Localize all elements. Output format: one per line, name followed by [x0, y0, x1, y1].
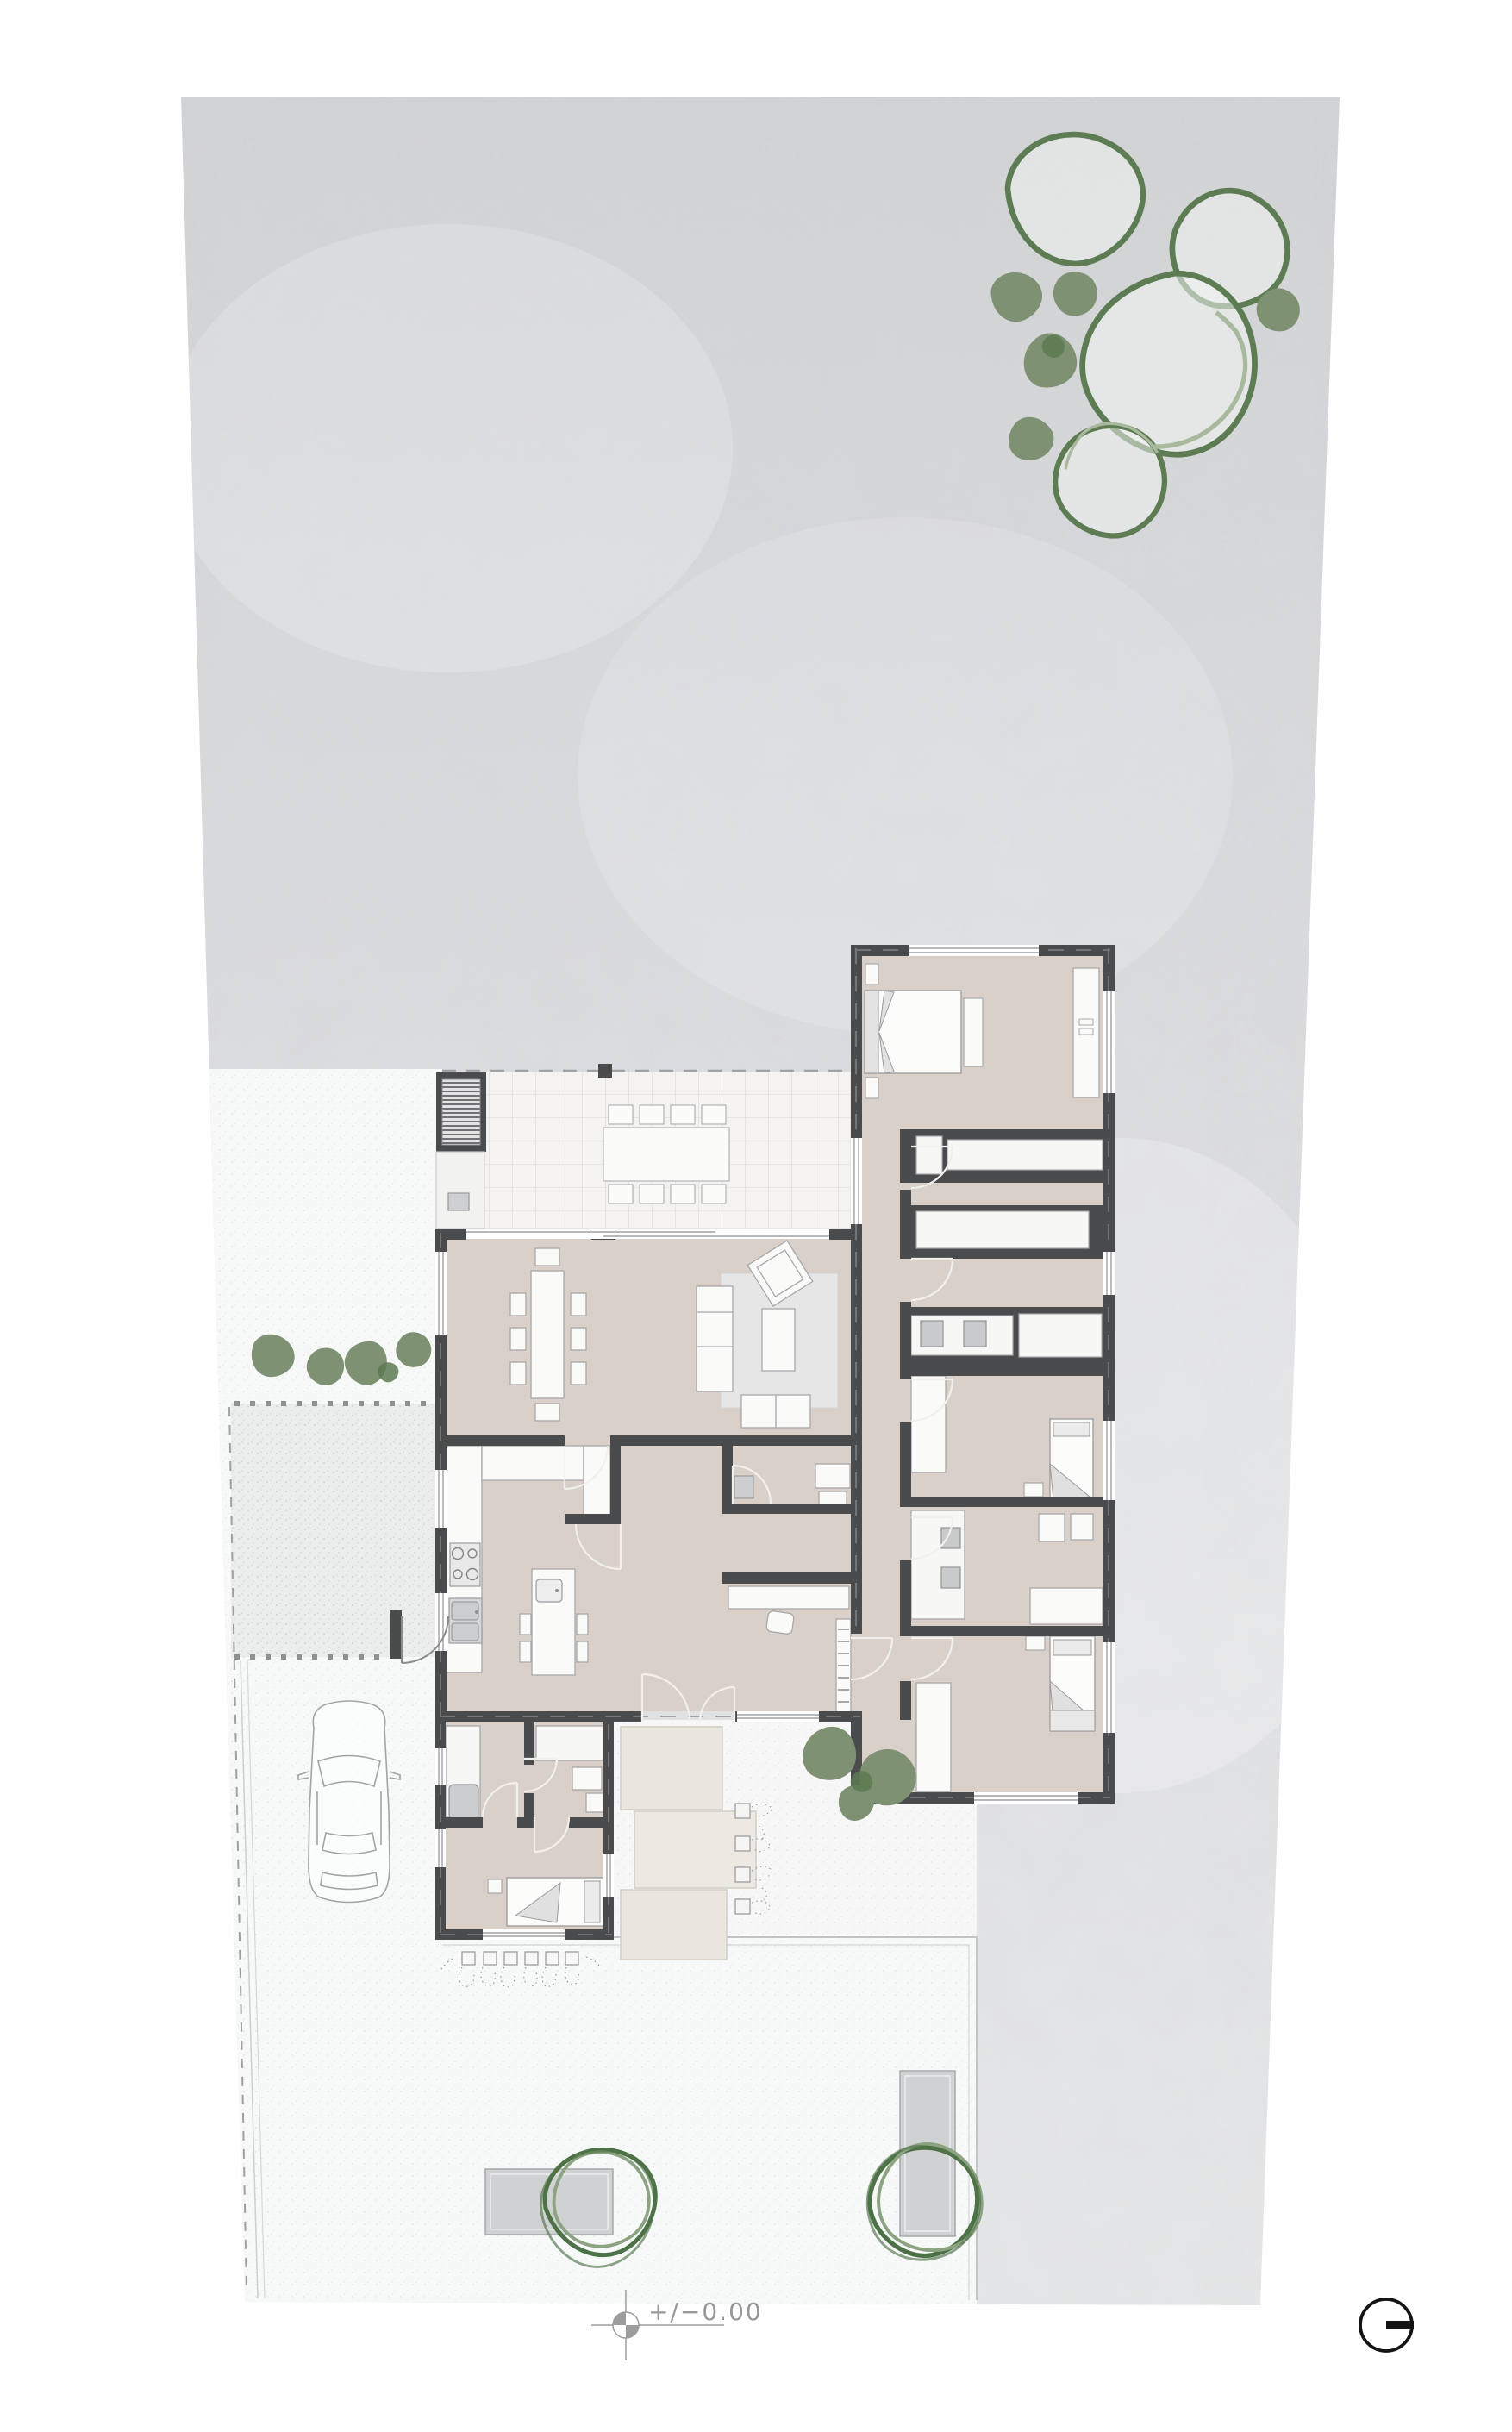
- outdoor-chair: [671, 1105, 695, 1124]
- stone-slab: [621, 1890, 727, 1960]
- bed-bench: [964, 998, 983, 1066]
- outdoor-chair: [609, 1105, 633, 1124]
- outdoor-chair: [640, 1185, 664, 1203]
- dining-chair: [535, 1404, 559, 1421]
- toilet: [1039, 1514, 1065, 1541]
- outdoor-chair: [702, 1105, 726, 1124]
- dining-chair: [510, 1362, 526, 1385]
- dryer: [964, 1321, 986, 1347]
- outdoor-chair: [702, 1185, 726, 1203]
- car-body: [309, 1701, 390, 1903]
- bedroom-wing-storage: [900, 1129, 1115, 1369]
- flower-bed-box: [484, 1952, 497, 1965]
- nightstand: [865, 964, 878, 985]
- side-table: [1026, 1636, 1045, 1650]
- pillow: [1053, 1640, 1091, 1655]
- closet-shelf: [916, 1136, 942, 1174]
- grill-unit: [448, 1193, 469, 1210]
- island-stool: [577, 1614, 588, 1635]
- flower-bed-box: [565, 1952, 578, 1965]
- gravel-forecourt: [231, 1404, 442, 1657]
- gate-wall-stub: [390, 1610, 402, 1659]
- flower-bed-box: [462, 1952, 475, 1965]
- island-sink: [536, 1579, 562, 1602]
- dining-chair: [571, 1328, 586, 1350]
- stone-slab: [621, 1727, 722, 1810]
- nightstand: [865, 1078, 878, 1098]
- terrace-vestibule: [436, 1152, 484, 1229]
- nightstand: [488, 1879, 502, 1893]
- dining-chair: [510, 1293, 526, 1316]
- island-stool: [520, 1641, 531, 1662]
- bidet: [1071, 1514, 1093, 1540]
- vanity: [911, 1510, 965, 1619]
- wardrobe-run: [916, 1211, 1089, 1248]
- outdoor-chair: [640, 1105, 664, 1124]
- storage-closet-hatch: [442, 1079, 480, 1145]
- storage-shelf: [536, 1726, 603, 1760]
- garden-lawn: [435, 1937, 977, 2305]
- bathroom-sink: [941, 1567, 960, 1588]
- flower-bed-box: [525, 1952, 538, 1965]
- toilet: [815, 1464, 850, 1488]
- side-table: [1024, 1483, 1043, 1497]
- kitchen-sink: [449, 1598, 482, 1643]
- washing-machine: [921, 1321, 943, 1347]
- sink: [586, 1793, 603, 1812]
- north-bar-icon: [1386, 2321, 1414, 2329]
- wardrobe: [916, 1683, 951, 1791]
- covered-terrace: [436, 1064, 851, 1229]
- flower-bed-box: [546, 1952, 559, 1965]
- wardrobe: [911, 1376, 946, 1472]
- double-bed: [865, 991, 961, 1073]
- cooktop: [450, 1543, 480, 1586]
- dresser: [1073, 968, 1099, 1097]
- desk: [728, 1586, 849, 1609]
- dining-chair: [535, 1248, 559, 1266]
- flower-bed-box: [504, 1952, 517, 1965]
- datum-quadrant: [626, 2325, 639, 2338]
- outdoor-chair: [609, 1185, 633, 1203]
- dining-chair: [571, 1293, 586, 1316]
- car: [298, 1701, 400, 1903]
- dining-chair: [510, 1328, 526, 1350]
- outdoor-table: [603, 1128, 729, 1181]
- site-plan-drawing: +/−0.00: [0, 0, 1512, 2432]
- bathtub: [1030, 1588, 1103, 1624]
- linen-closet: [1019, 1314, 1102, 1357]
- shower-tray: [449, 1785, 478, 1819]
- toilet: [572, 1767, 602, 1790]
- closet-shelf-long: [947, 1140, 1103, 1170]
- north-indicator: [1360, 2299, 1414, 2351]
- datum-quadrant: [613, 2312, 626, 2325]
- island-stool: [520, 1614, 531, 1635]
- sofa: [697, 1286, 733, 1391]
- level-marker-label: +/−0.00: [648, 2298, 763, 2326]
- coffee-table: [762, 1309, 795, 1371]
- pillow: [584, 1881, 600, 1922]
- headboard: [865, 991, 878, 1073]
- pillow: [1053, 1422, 1090, 1436]
- kitchen-counter-north: [482, 1446, 584, 1480]
- dining-chair: [571, 1362, 586, 1385]
- outdoor-chair: [671, 1185, 695, 1203]
- blanket: [1050, 1710, 1095, 1731]
- bookshelf: [836, 1619, 851, 1714]
- island-stool: [577, 1641, 588, 1662]
- wc-sink: [734, 1476, 753, 1498]
- dining-table: [531, 1271, 564, 1398]
- terrace-column: [598, 1064, 612, 1078]
- desk-chair: [765, 1610, 794, 1635]
